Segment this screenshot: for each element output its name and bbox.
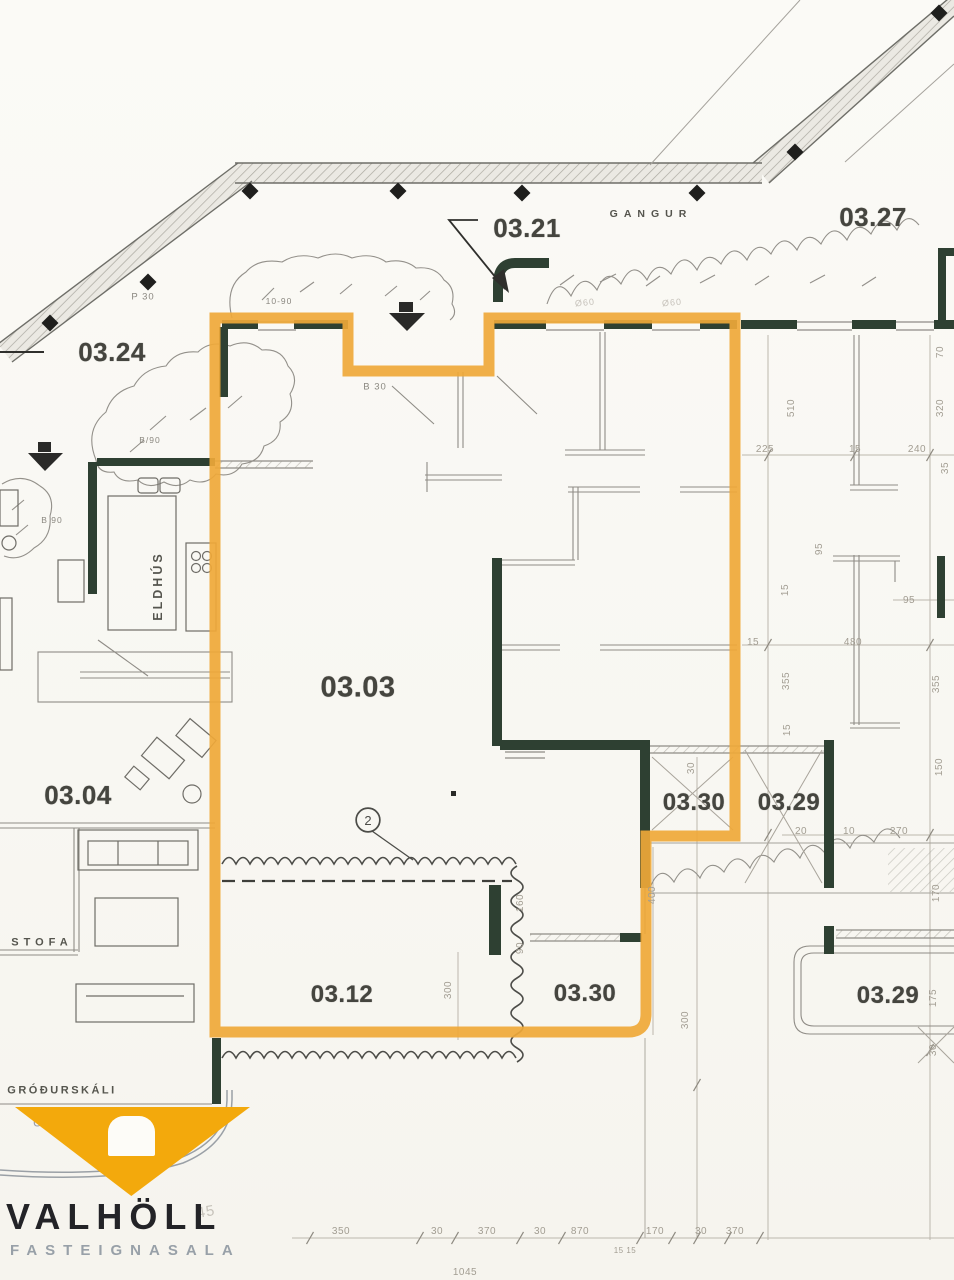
area-label-grodurskali: GRÓÐURSKÁLI: [7, 1086, 116, 1097]
room-label-03-29-bottom: 03.29: [857, 984, 920, 1008]
note-b90-lower: B 90: [41, 516, 63, 525]
room-label-03-12: 03.12: [311, 983, 374, 1007]
room-label-03-30-mid: 03.30: [663, 791, 726, 815]
dim-label: 15 15: [614, 1247, 637, 1255]
note-b90-upper: B/90: [139, 436, 161, 445]
room-label-03-29-mid: 03.29: [758, 791, 821, 815]
dim-label: 370: [478, 1227, 496, 1237]
dim-label: 10: [843, 827, 855, 837]
note-o60-b: Ø60: [662, 298, 683, 309]
dim-label: 30: [929, 1044, 939, 1056]
dim-label: 150: [935, 758, 945, 776]
note-p30: P 30: [131, 292, 154, 302]
area-label-gangur: GANGUR: [610, 209, 693, 220]
dim-label: 355: [782, 672, 792, 690]
dim-label: 350: [332, 1227, 350, 1237]
logo-house-icon: [108, 1116, 155, 1156]
dim-label: 95: [903, 596, 915, 606]
room-label-03-24: 03.24: [78, 339, 146, 365]
dim-label: 170: [932, 884, 942, 902]
dim-label: 90: [516, 942, 526, 954]
dim-label: 30: [534, 1227, 546, 1237]
dim-label: 270: [890, 827, 908, 837]
dim-label: 35: [941, 462, 951, 474]
room-label-03-04: 03.04: [44, 782, 112, 808]
dim-label: 175: [929, 989, 939, 1007]
note-o60-a: Ø60: [575, 297, 596, 308]
floor-plan-canvas: 03.2103.2703.2403.0303.0403.3003.2903.12…: [0, 0, 954, 1280]
dim-label: 15: [849, 445, 861, 455]
area-label-eldhus: ELDHÚS: [152, 551, 165, 620]
dim-label: 70: [936, 346, 946, 358]
dim-label: 870: [571, 1227, 589, 1237]
dim-label: 170: [646, 1227, 664, 1237]
dim-label: 510: [787, 399, 797, 417]
area-label-stofa: STOFA: [11, 938, 72, 949]
dim-label: 30: [695, 1227, 707, 1237]
dim-label: 300: [681, 1011, 691, 1029]
room-label-03-27: 03.27: [839, 204, 907, 230]
dim-label: 15: [781, 584, 791, 596]
plan-labels: 03.2103.2703.2403.0303.0403.3003.2903.12…: [0, 0, 954, 1280]
dim-label: 400: [648, 886, 658, 904]
dim-label: 160: [516, 894, 526, 912]
logo-tagline: FASTEIGNASALA: [10, 1242, 241, 1259]
room-label-03-03: 03.03: [320, 674, 395, 703]
dim-label: 480: [844, 638, 862, 648]
logo-brand: VALHÖLL: [6, 1196, 222, 1238]
room-label-03-21: 03.21: [493, 215, 561, 241]
note-10-90: 10-90: [266, 297, 293, 306]
dim-label: 30: [687, 762, 697, 774]
dim-label: 20: [795, 827, 807, 837]
dim-label: 240: [908, 445, 926, 455]
dim-label: 320: [936, 399, 946, 417]
change-marker-2: 2: [356, 808, 380, 832]
dim-label: 95: [815, 543, 825, 555]
dim-label: 355: [932, 675, 942, 693]
dim-label: 30: [431, 1227, 443, 1237]
dim-label: 15: [747, 638, 759, 648]
note-b30: B 30: [363, 382, 387, 392]
dim-label: 225: [756, 445, 774, 455]
dim-label: 370: [726, 1227, 744, 1237]
room-label-03-30-bottom: 03.30: [554, 982, 617, 1006]
dim-label: 15: [783, 724, 793, 736]
dim-label: 300: [444, 981, 454, 999]
dim-label: 1045: [453, 1268, 477, 1278]
